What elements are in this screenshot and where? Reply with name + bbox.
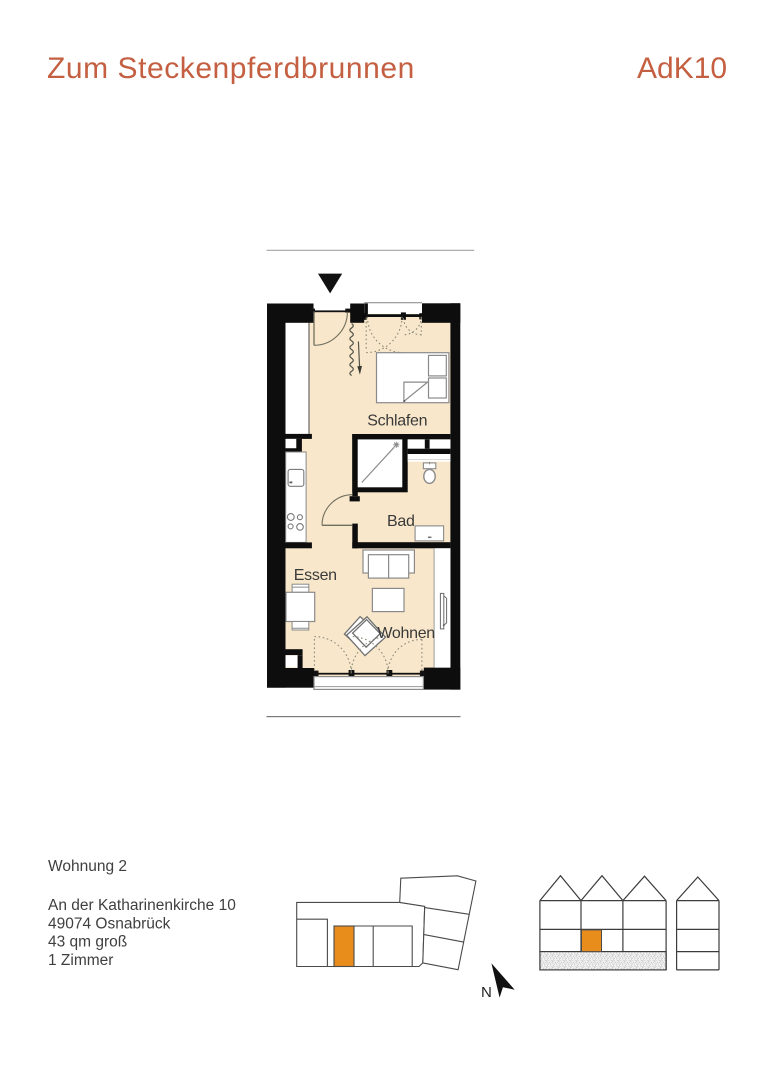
svg-text:AdK10: AdK10	[637, 52, 727, 85]
svg-text:1 Zimmer: 1 Zimmer	[48, 952, 113, 969]
svg-text:Wohnen: Wohnen	[377, 625, 435, 642]
svg-text:Bad: Bad	[387, 513, 415, 530]
svg-text:43 qm groß: 43 qm groß	[48, 934, 127, 951]
svg-text:49074 Osnabrück: 49074 Osnabrück	[48, 915, 171, 932]
svg-text:An der Katharinenkirche 10: An der Katharinenkirche 10	[48, 897, 236, 914]
svg-text:Wohnung 2: Wohnung 2	[48, 858, 127, 875]
svg-text:Zum Steckenpferdbrunnen: Zum Steckenpferdbrunnen	[47, 52, 415, 85]
svg-text:Essen: Essen	[294, 567, 337, 584]
svg-text:Schlafen: Schlafen	[367, 412, 427, 429]
svg-text:N: N	[481, 984, 492, 1001]
